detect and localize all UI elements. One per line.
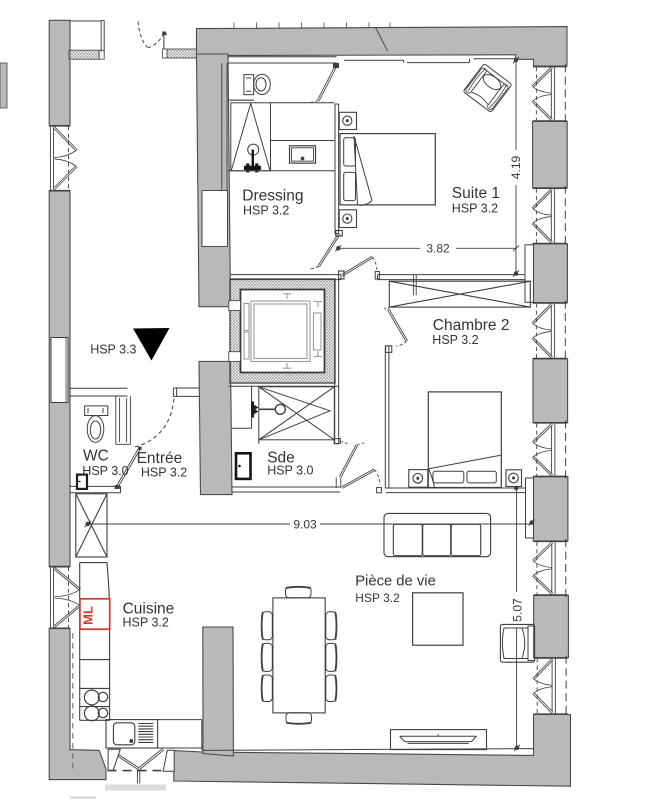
svg-text:9.03: 9.03	[293, 518, 317, 532]
svg-text:5.07: 5.07	[511, 598, 525, 622]
svg-text:HSP 3.2: HSP 3.2	[123, 616, 169, 630]
svg-text:HSP 3.2: HSP 3.2	[432, 333, 478, 347]
svg-text:3.82: 3.82	[426, 242, 450, 256]
svg-text:Chambre 2: Chambre 2	[433, 317, 510, 334]
svg-text:HSP 3.0: HSP 3.0	[267, 464, 313, 478]
svg-text:4.19: 4.19	[509, 155, 523, 179]
svg-text:Entrée: Entrée	[137, 450, 183, 467]
svg-text:Dressing: Dressing	[242, 187, 303, 204]
svg-text:ML: ML	[81, 606, 96, 625]
svg-text:HSP 3.2: HSP 3.2	[141, 466, 187, 480]
svg-text:HSP 3.2: HSP 3.2	[243, 204, 289, 218]
svg-text:Pièce de vie: Pièce de vie	[355, 573, 436, 589]
svg-text:HSP 3.0: HSP 3.0	[82, 464, 128, 478]
svg-text:HSP 3.2: HSP 3.2	[355, 591, 400, 605]
svg-text:HSP 3.2: HSP 3.2	[452, 202, 498, 216]
svg-text:HSP 3.3: HSP 3.3	[90, 343, 136, 357]
svg-text:WC: WC	[83, 448, 109, 465]
svg-text:Suite 1: Suite 1	[452, 185, 500, 202]
